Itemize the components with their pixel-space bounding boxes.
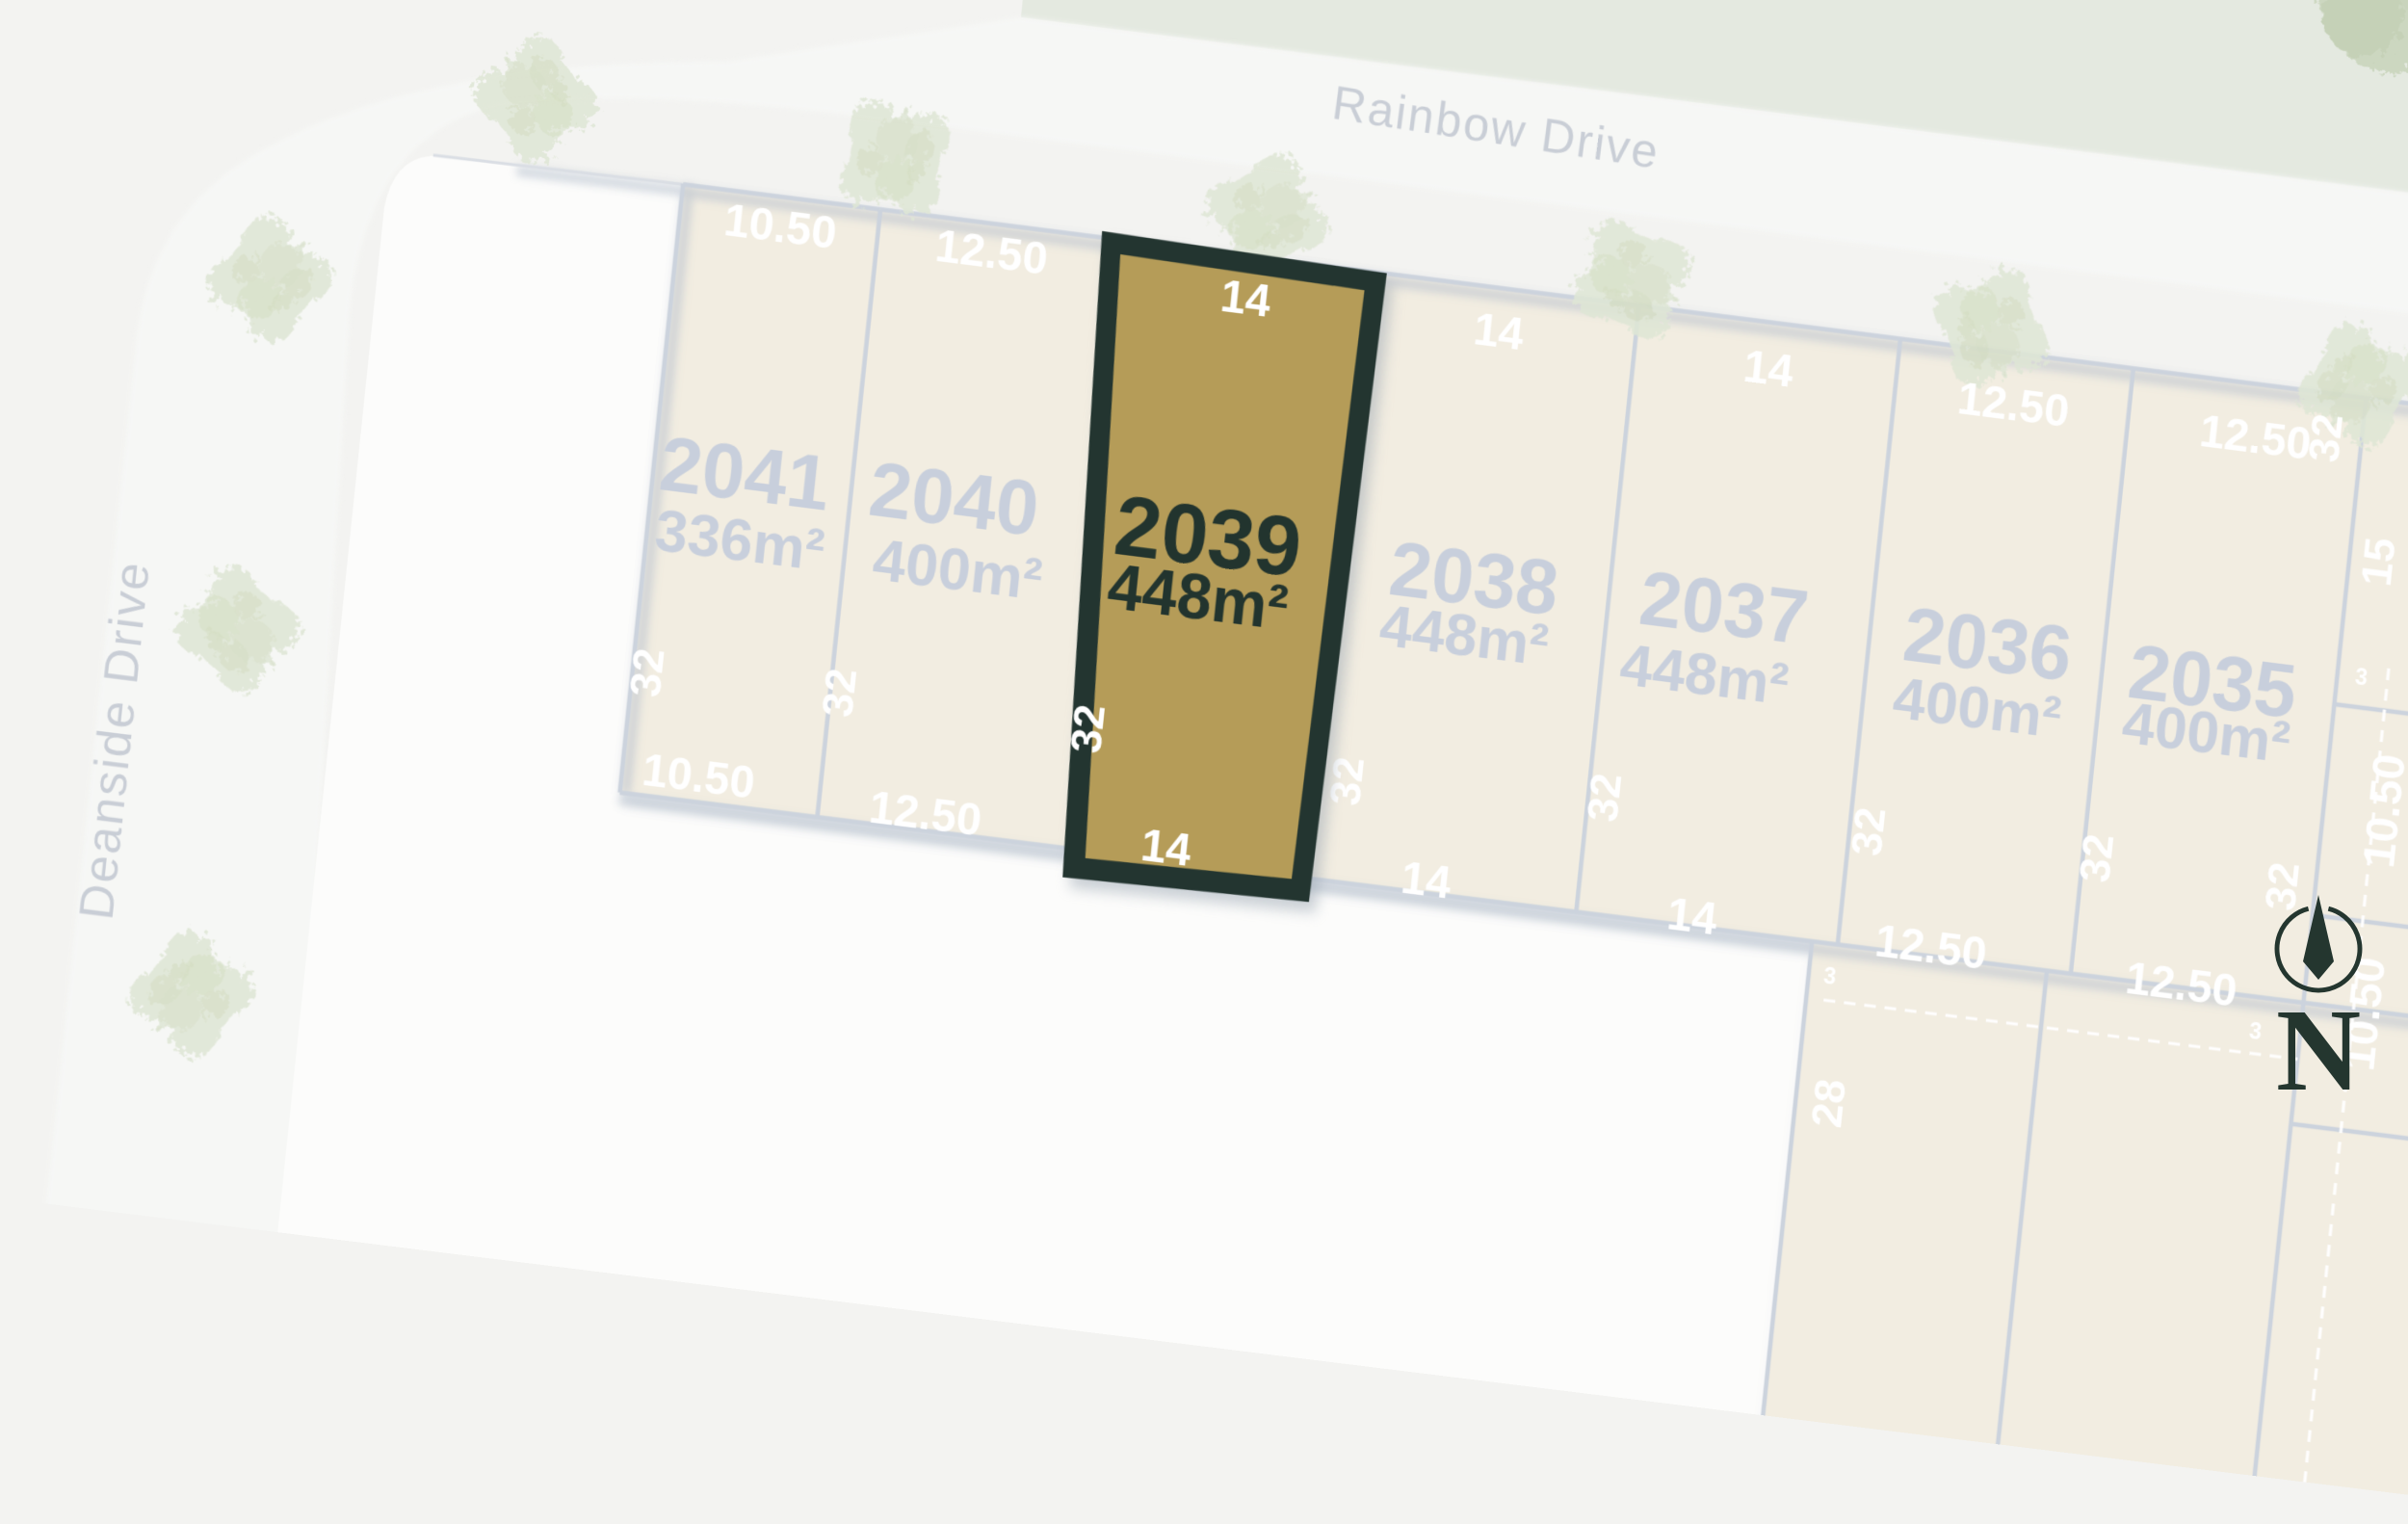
svg-text:N: N xyxy=(2276,985,2361,1116)
